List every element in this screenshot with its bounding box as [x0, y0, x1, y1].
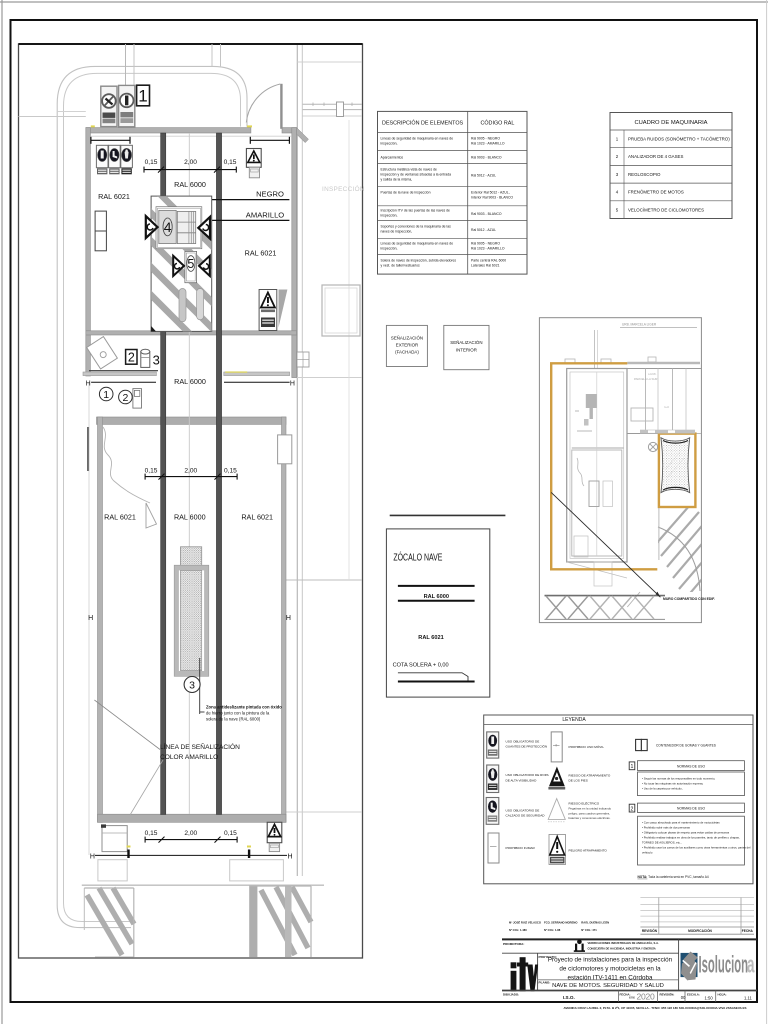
svg-text:PRUEBA RUIDOS (SONÓMETRO + TAC: PRUEBA RUIDOS (SONÓMETRO + TACÓMETRO) — [628, 137, 730, 142]
svg-text:2,00: 2,00 — [184, 159, 197, 166]
svg-text:Ral 1023 - AMARILLO: Ral 1023 - AMARILLO — [471, 142, 505, 146]
svg-text:NEGRO: NEGRO — [256, 190, 284, 199]
svg-text:de hierro junto con la pintura: de hierro junto con la pintura de la — [206, 711, 270, 716]
svg-text:INTERIOR: INTERIOR — [456, 348, 477, 353]
svg-text:Interior Ral 9003 - BLANCO: Interior Ral 9003 - BLANCO — [471, 196, 513, 200]
svg-text:• Obligatorio colocar plazas: • Obligatorio colocar plazas de respeto … — [642, 831, 730, 835]
svg-text:3: 3 — [189, 680, 195, 692]
svg-text:I.S.O.: I.S.O. — [563, 995, 575, 1000]
svg-text:Líneas de seguridad de maquina: Líneas de seguridad de maquinaria en nav… — [381, 242, 454, 246]
svg-text:1: 1 — [631, 764, 634, 770]
svg-text:peligro, para cuadros generale: peligro, para cuadros generales, — [569, 811, 611, 815]
svg-text:• Prohibido usar los carros d: • Prohibido usar los carros de los auxil… — [642, 846, 751, 850]
svg-text:H: H — [286, 615, 291, 622]
svg-text:RAL 6021: RAL 6021 — [241, 513, 273, 522]
svg-text:5: 5 — [187, 257, 194, 271]
svg-text:y salida de la misma,: y salida de la misma, — [381, 178, 413, 182]
svg-text:Zona antideslizante pintada co: Zona antideslizante pintada con óxido — [206, 705, 282, 710]
svg-text:Ral 5012 - AZUL: Ral 5012 - AZUL — [471, 228, 496, 232]
svg-text:0,15: 0,15 — [145, 830, 158, 837]
svg-text:0,15: 0,15 — [224, 468, 237, 475]
svg-text:RIESGO ELÉCTRICO: RIESGO ELÉCTRICO — [569, 801, 600, 806]
svg-text:LEYENDA: LEYENDA — [562, 717, 586, 723]
svg-text:1: 1 — [138, 87, 147, 106]
svg-text:REVISIÓN: REVISIÓN — [642, 928, 658, 933]
svg-text:ESCALA:: ESCALA: — [687, 992, 700, 996]
svg-text:baterías y conexiones eléctric: baterías y conexiones eléctricas. — [569, 816, 611, 820]
svg-text:• Con casco abrochado para el: • Con casco abrochado para el mantenimie… — [642, 821, 720, 825]
svg-text:MURO COMPARTIDO CON EDIF.: MURO COMPARTIDO CON EDIF. — [663, 597, 715, 601]
svg-text:Puertas de la nave de inspecci: Puertas de la nave de inspección — [381, 191, 431, 195]
svg-text:RAL 6000: RAL 6000 — [174, 180, 206, 189]
svg-text:Ral 9003 - BLANCO: Ral 9003 - BLANCO — [471, 212, 502, 216]
svg-text:0,15: 0,15 — [224, 159, 237, 166]
svg-text:H: H — [90, 853, 95, 860]
svg-text:PROHIBIDO USO MÓVIL: PROHIBIDO USO MÓVIL — [569, 744, 605, 749]
svg-text:RAL 6021: RAL 6021 — [104, 513, 136, 522]
svg-text:EXTERIOR: EXTERIOR — [396, 343, 418, 348]
svg-text:2: 2 — [631, 807, 634, 813]
svg-text:RAL 6000: RAL 6000 — [174, 377, 206, 386]
svg-text:00: 00 — [681, 995, 686, 1000]
svg-text:ANALIZADOR DE 4 GASES: ANALIZADOR DE 4 GASES — [628, 154, 683, 159]
svg-text:CONTENEDOR DE GOMAS Y GUANTES: CONTENEDOR DE GOMAS Y GUANTES — [656, 744, 716, 748]
svg-text:NORMAS DE USO: NORMAS DE USO — [677, 807, 705, 811]
svg-text:INSPECCIÓN: INSPECCIÓN — [322, 184, 365, 193]
svg-text:Solera de naves de inspección,: Solera de naves de inspección, subida el… — [381, 258, 457, 262]
svg-text:Exterior Ral 5012 - AZUL,: Exterior Ral 5012 - AZUL, — [471, 191, 510, 195]
svg-text:GUANTES DE PROTECCIÓN: GUANTES DE PROTECCIÓN — [506, 744, 548, 749]
svg-text:USO OBLIGATORIO DE: USO OBLIGATORIO DE — [506, 740, 540, 744]
svg-text:2: 2 — [122, 392, 128, 404]
svg-text:naves de inspección,: naves de inspección, — [381, 230, 413, 234]
svg-text:inspección y de ventanas situa: inspección y de ventanas situadas a la e… — [381, 173, 452, 177]
svg-text:vehículo: vehículo — [642, 851, 653, 855]
svg-text:G+D: G+D — [664, 406, 669, 409]
svg-text:Ral 1023 - AMARILLO: Ral 1023 - AMARILLO — [471, 247, 505, 251]
svg-text:3: 3 — [153, 352, 160, 367]
svg-text:Ral 9003 - BLANCO: Ral 9003 - BLANCO — [471, 156, 502, 160]
svg-text:estación ITV-1411 en Córdob: estación ITV-1411 en Córdoba — [568, 975, 653, 982]
svg-text:AMARILLO: AMARILLO — [246, 211, 284, 220]
svg-text:NOTA: Toda la cartelería será: NOTA: Toda la cartelería será en PVC, ta… — [638, 875, 709, 879]
svg-text:H: H — [290, 380, 295, 387]
svg-text:RAL 6000: RAL 6000 — [424, 594, 449, 600]
svg-text:Ral 5012 - AZUL: Ral 5012 - AZUL — [471, 174, 496, 178]
svg-text:2020: 2020 — [637, 991, 655, 1001]
svg-text:CALZADO DE SEGURIDAD: CALZADO DE SEGURIDAD — [506, 814, 546, 818]
svg-text:Ral 9005 - NEGRO: Ral 9005 - NEGRO — [471, 242, 500, 246]
svg-text:0,15: 0,15 — [224, 830, 237, 837]
svg-text:Aparcamientos: Aparcamientos — [381, 156, 404, 160]
svg-text:Isolucion: Isolucion — [699, 952, 749, 979]
svg-text:Nº COL: 1.480: Nº COL: 1.480 — [509, 928, 527, 932]
svg-text:USO OBLIGATORIO DE: USO OBLIGATORIO DE — [506, 809, 540, 813]
svg-text:PLANO:: PLANO: — [539, 980, 551, 984]
svg-text:(FACHADA): (FACHADA) — [395, 350, 419, 355]
svg-text:URB. MARCELA LIGER: URB. MARCELA LIGER — [622, 323, 657, 327]
svg-text:a: a — [747, 952, 755, 979]
svg-text:CÓDIGO RAL: CÓDIGO RAL — [480, 120, 514, 127]
svg-text:VELOCÍMETRO DE CICLOMOTORES: VELOCÍMETRO DE CICLOMOTORES — [628, 207, 704, 212]
svg-text:LAVAB.: LAVAB. — [648, 373, 657, 376]
svg-text:NAVE DE MOTOS. SEGURIDAD Y SAL: NAVE DE MOTOS. SEGURIDAD Y SALUD — [552, 983, 664, 989]
svg-text:TORNEO DE AGUJEROS, etc...: TORNEO DE AGUJEROS, etc... — [642, 841, 682, 845]
svg-text:COTA SOLERA + 0,00: COTA SOLERA + 0,00 — [393, 663, 449, 669]
svg-text:inspección,: inspección, — [381, 247, 398, 251]
svg-text:ene: ene — [629, 995, 635, 999]
svg-text:inspección,: inspección, — [381, 142, 398, 146]
svg-text:COLOR AMARILLO: COLOR AMARILLO — [160, 754, 218, 761]
svg-text:Ral 9005 - NEGRO: Ral 9005 - NEGRO — [471, 137, 500, 141]
svg-text:Proyecto de instalaciones p: Proyecto de instalaciones para la inspec… — [548, 957, 673, 964]
svg-text:solera de la nave (RAL 6000): solera de la nave (RAL 6000) — [206, 717, 261, 722]
svg-text:DESCRIPCIÓN DE ELEMENTOS: DESCRIPCIÓN DE ELEMENTOS — [382, 120, 463, 127]
svg-text:• Uso de la carpeta por vehíc: • Uso de la carpeta por vehículo, — [642, 786, 683, 790]
svg-text:• Prohibido subir más de dos: • Prohibido subir más de dos personas — [642, 826, 691, 830]
svg-text:H: H — [88, 615, 93, 622]
svg-text:Parte central RAL 6000: Parte central RAL 6000 — [471, 258, 506, 262]
svg-text:Soportes y conexiones de la ma: Soportes y conexiones de la maquinaria d… — [381, 225, 452, 229]
svg-text:Líneas de seguridad de maquina: Líneas de seguridad de maquinaria en nav… — [381, 137, 454, 141]
svg-text:SEÑALIZACIÓN: SEÑALIZACIÓN — [391, 336, 423, 341]
svg-text:de ciclomotores y motocicle: de ciclomotores y motocicletas en la — [559, 966, 661, 973]
svg-text:DE ALTA VISIBILIDAD: DE ALTA VISIBILIDAD — [506, 778, 538, 782]
svg-text:FCO. SERRANO MORENO: FCO. SERRANO MORENO — [544, 921, 577, 925]
svg-text:PELIGRO ATRAPAMIENTO: PELIGRO ATRAPAMIENTO — [569, 849, 608, 853]
svg-text:• No tocar las máquinas sin a: • No tocar las máquinas sin autorización… — [642, 781, 704, 785]
svg-text:RAL 6000: RAL 6000 — [174, 513, 206, 522]
svg-text:RAL 6021: RAL 6021 — [98, 192, 130, 201]
svg-text:2,00: 2,00 — [184, 468, 197, 475]
svg-text:MODIFICACIÓN: MODIFICACIÓN — [688, 928, 712, 933]
svg-text:H: H — [86, 380, 91, 387]
svg-text:1: 1 — [103, 389, 109, 401]
svg-text:Nº COL: 1.88: Nº COL: 1.88 — [544, 928, 561, 932]
svg-text:USO OBLIGATORIO DE ROPA: USO OBLIGATORIO DE ROPA — [506, 773, 550, 777]
svg-text:0,15: 0,15 — [145, 468, 158, 475]
svg-text:H: H — [287, 853, 292, 860]
svg-text:PROHIBIDO FUMAR: PROHIBIDO FUMAR — [506, 846, 536, 850]
svg-text:DE LOS PIES: DE LOS PIES — [569, 779, 588, 783]
svg-text:RIESGO DE ATRAPAMIENTO: RIESGO DE ATRAPAMIENTO — [569, 774, 611, 778]
svg-text:2,00: 2,00 — [184, 830, 197, 837]
svg-text:Estructura metálica vista de n: Estructura metálica vista de naves de — [381, 168, 437, 172]
svg-text:Inscripción ITV de las puertas: Inscripción ITV de las puertas de las na… — [381, 209, 450, 213]
svg-text:CUADRO DE MAQUINARIA: CUADRO DE MAQUINARIA — [634, 120, 707, 126]
svg-text:ZÓCALO NAVE: ZÓCALO NAVE — [393, 551, 442, 564]
svg-text:PROMOTORA:: PROMOTORA: — [503, 942, 524, 946]
svg-text:y vest. de taller/vestuarios: y vest. de taller/vestuarios — [381, 263, 421, 267]
svg-text:REVISIÓN:: REVISIÓN: — [660, 991, 675, 996]
svg-text:REGLOSCOPIO: REGLOSCOPIO — [628, 172, 661, 177]
svg-text:PARCELA LA SUR: PARCELA LA SUR — [634, 377, 657, 381]
svg-text:• Seguir las normas de los re: • Seguir las normas de los responsables … — [642, 776, 715, 780]
svg-text:Pegatinas en la unidad indican: Pegatinas en la unidad indicando — [569, 807, 612, 811]
svg-text:DIBUJADO:: DIBUJADO: — [503, 992, 519, 996]
svg-text:• Prohibido realizar trabajos: • Prohibido realizar trabajos en obra de… — [642, 836, 740, 840]
svg-text:AVENIDA CRUZ LAUREL 2, PLTA. B: AVENIDA CRUZ LAUREL 2, PLTA. B 2ª1, CP 4… — [563, 1006, 746, 1010]
svg-text:FRENÓMETRO DE MOTOS: FRENÓMETRO DE MOTOS — [628, 190, 684, 195]
svg-text:4: 4 — [164, 219, 172, 235]
svg-text:RAL 6021: RAL 6021 — [245, 249, 277, 258]
svg-text:NORMAS DE USO: NORMAS DE USO — [677, 764, 705, 768]
svg-text:LÍNEA DE SEÑALIZACIÓN: LÍNEA DE SEÑALIZACIÓN — [160, 742, 240, 751]
svg-text:1:50: 1:50 — [705, 996, 714, 1001]
svg-text:2: 2 — [128, 351, 135, 365]
svg-text:0,15: 0,15 — [145, 159, 158, 166]
svg-text:Laterales Ral 6021: Laterales Ral 6021 — [471, 263, 500, 267]
svg-text:RAL 6021: RAL 6021 — [418, 635, 443, 641]
svg-text:1,11: 1,11 — [744, 996, 753, 1001]
svg-text:FECHA: FECHA — [742, 929, 754, 933]
svg-text:Nº COL: 471: Nº COL: 471 — [581, 928, 597, 932]
svg-text:HOJA:: HOJA: — [718, 992, 727, 996]
svg-text:inspección,: inspección, — [381, 214, 398, 218]
svg-text:SEÑALIZACIÓN: SEÑALIZACIÓN — [450, 340, 482, 345]
